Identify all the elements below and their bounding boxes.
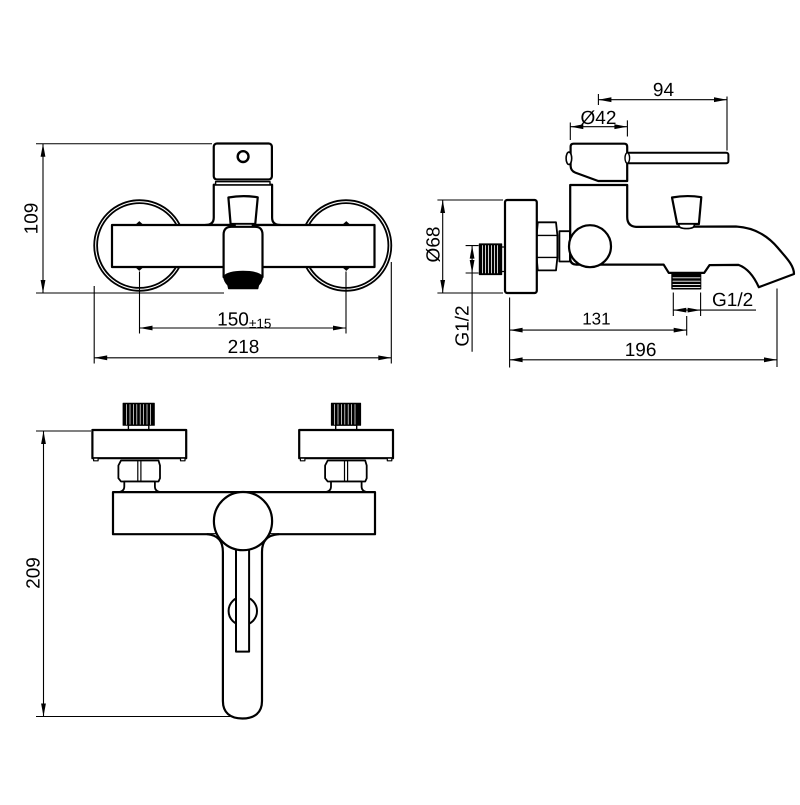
svg-text:218: 218 [228, 337, 260, 358]
svg-text:G1/2: G1/2 [712, 290, 753, 311]
svg-text:150: 150 [217, 310, 249, 331]
svg-text:G1/2: G1/2 [453, 305, 474, 346]
svg-text:Ø68: Ø68 [424, 227, 445, 263]
svg-text:209: 209 [24, 557, 45, 589]
svg-text:Ø42: Ø42 [581, 108, 617, 129]
svg-text:131: 131 [582, 309, 610, 328]
svg-text:±15: ±15 [249, 316, 271, 331]
svg-text:94: 94 [653, 80, 675, 101]
svg-text:109: 109 [22, 203, 43, 235]
svg-text:196: 196 [625, 340, 657, 361]
